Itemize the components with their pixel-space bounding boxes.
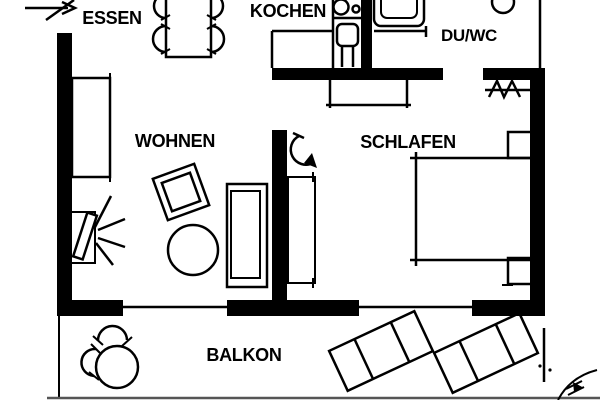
shower-tray (374, 0, 426, 37)
sideboard (72, 73, 110, 182)
bed (410, 152, 533, 266)
nightstand (502, 132, 532, 285)
wardrobe (288, 172, 315, 288)
room-label-balkon: BALKON (206, 345, 281, 365)
tv (70, 196, 125, 265)
coffee-table (168, 225, 218, 275)
room-label-schlafen: SCHLAFEN (360, 132, 456, 152)
dresser (326, 80, 411, 108)
sun-lounger (434, 313, 538, 393)
toilet (492, 0, 514, 13)
floor-plan: ESSEN KOCHEN DU/WC WOHNEN SCHLAFEN BALKO… (0, 0, 600, 400)
armchair (153, 164, 209, 220)
room-label-wohnen: WOHNEN (135, 131, 215, 151)
entrance-arrow (25, 0, 75, 20)
shrub (558, 370, 597, 400)
coat-hooks (485, 81, 531, 97)
room-label-du-wc: DU/WC (441, 26, 497, 45)
balcony-edge (47, 316, 600, 399)
cooktop-burner-large (334, 0, 349, 15)
kitchen-sink (337, 24, 358, 46)
floor-plan-page: ESSEN KOCHEN DU/WC WOHNEN SCHLAFEN BALKO… (0, 0, 600, 400)
room-label-essen: ESSEN (82, 8, 142, 28)
kitchen-unit (333, 0, 361, 68)
dining-table (166, 0, 211, 57)
balcony-chairs (81, 326, 132, 380)
balcony-table (96, 346, 138, 388)
door-swing (291, 133, 317, 168)
sun-lounger (329, 311, 433, 391)
sofa (227, 184, 267, 287)
room-label-kochen: KOCHEN (250, 1, 326, 21)
cooktop-burner-small (353, 6, 360, 13)
dining-chairs (153, 0, 224, 54)
